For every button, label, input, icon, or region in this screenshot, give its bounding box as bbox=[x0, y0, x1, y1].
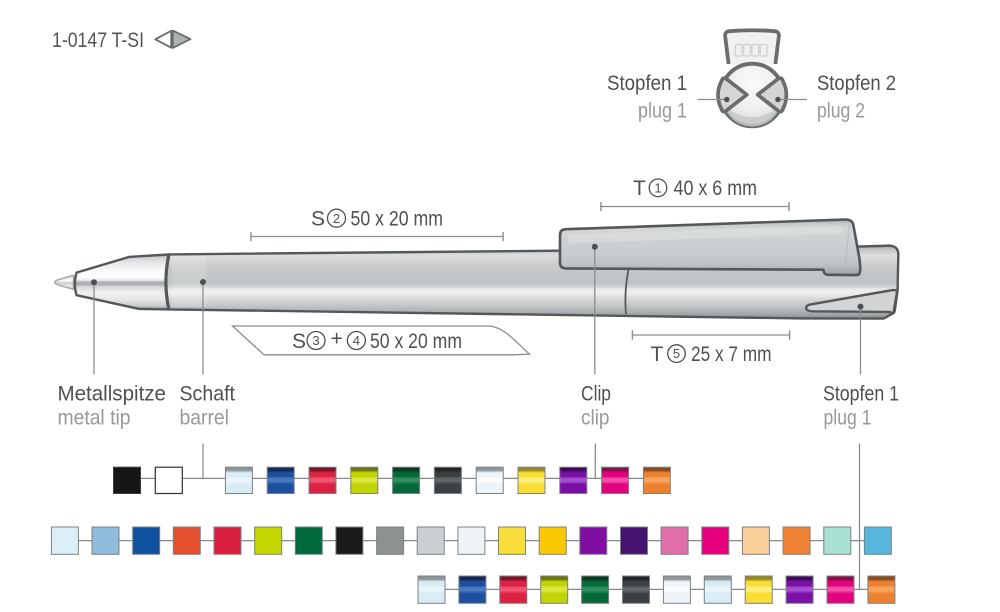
svg-text:50 x 20 mm: 50 x 20 mm bbox=[351, 208, 444, 231]
svg-text:1: 1 bbox=[654, 180, 661, 195]
svg-text:T: T bbox=[633, 177, 646, 200]
svg-text:25 x 7 mm: 25 x 7 mm bbox=[691, 343, 772, 366]
svg-text:Schaft: Schaft bbox=[180, 382, 236, 405]
svg-text:plug 2: plug 2 bbox=[817, 100, 865, 123]
svg-text:Stopfen 2: Stopfen 2 bbox=[817, 72, 896, 95]
svg-text:S: S bbox=[292, 330, 306, 353]
svg-text:Clip: Clip bbox=[581, 382, 611, 405]
svg-text:S: S bbox=[311, 208, 325, 231]
svg-text:5: 5 bbox=[673, 346, 680, 361]
svg-text:4: 4 bbox=[353, 333, 360, 348]
svg-text:Metallspitze: Metallspitze bbox=[58, 382, 167, 405]
svg-text:Stopfen 1: Stopfen 1 bbox=[823, 382, 899, 405]
svg-text:+: + bbox=[331, 328, 343, 351]
svg-text:plug 1: plug 1 bbox=[638, 100, 687, 123]
svg-text:metal tip: metal tip bbox=[58, 407, 131, 430]
svg-text:Stopfen 1: Stopfen 1 bbox=[607, 72, 687, 95]
svg-text:plug 1: plug 1 bbox=[824, 407, 872, 430]
svg-text:40 x 6 mm: 40 x 6 mm bbox=[674, 177, 758, 200]
svg-text:T: T bbox=[651, 343, 664, 366]
svg-text:clip: clip bbox=[581, 407, 610, 430]
svg-text:barrel: barrel bbox=[180, 407, 230, 430]
svg-text:3: 3 bbox=[312, 333, 319, 348]
svg-text:1-0147 T-SI: 1-0147 T-SI bbox=[52, 28, 144, 52]
svg-text:50 x 20 mm: 50 x 20 mm bbox=[370, 330, 462, 353]
svg-text:2: 2 bbox=[333, 211, 340, 226]
